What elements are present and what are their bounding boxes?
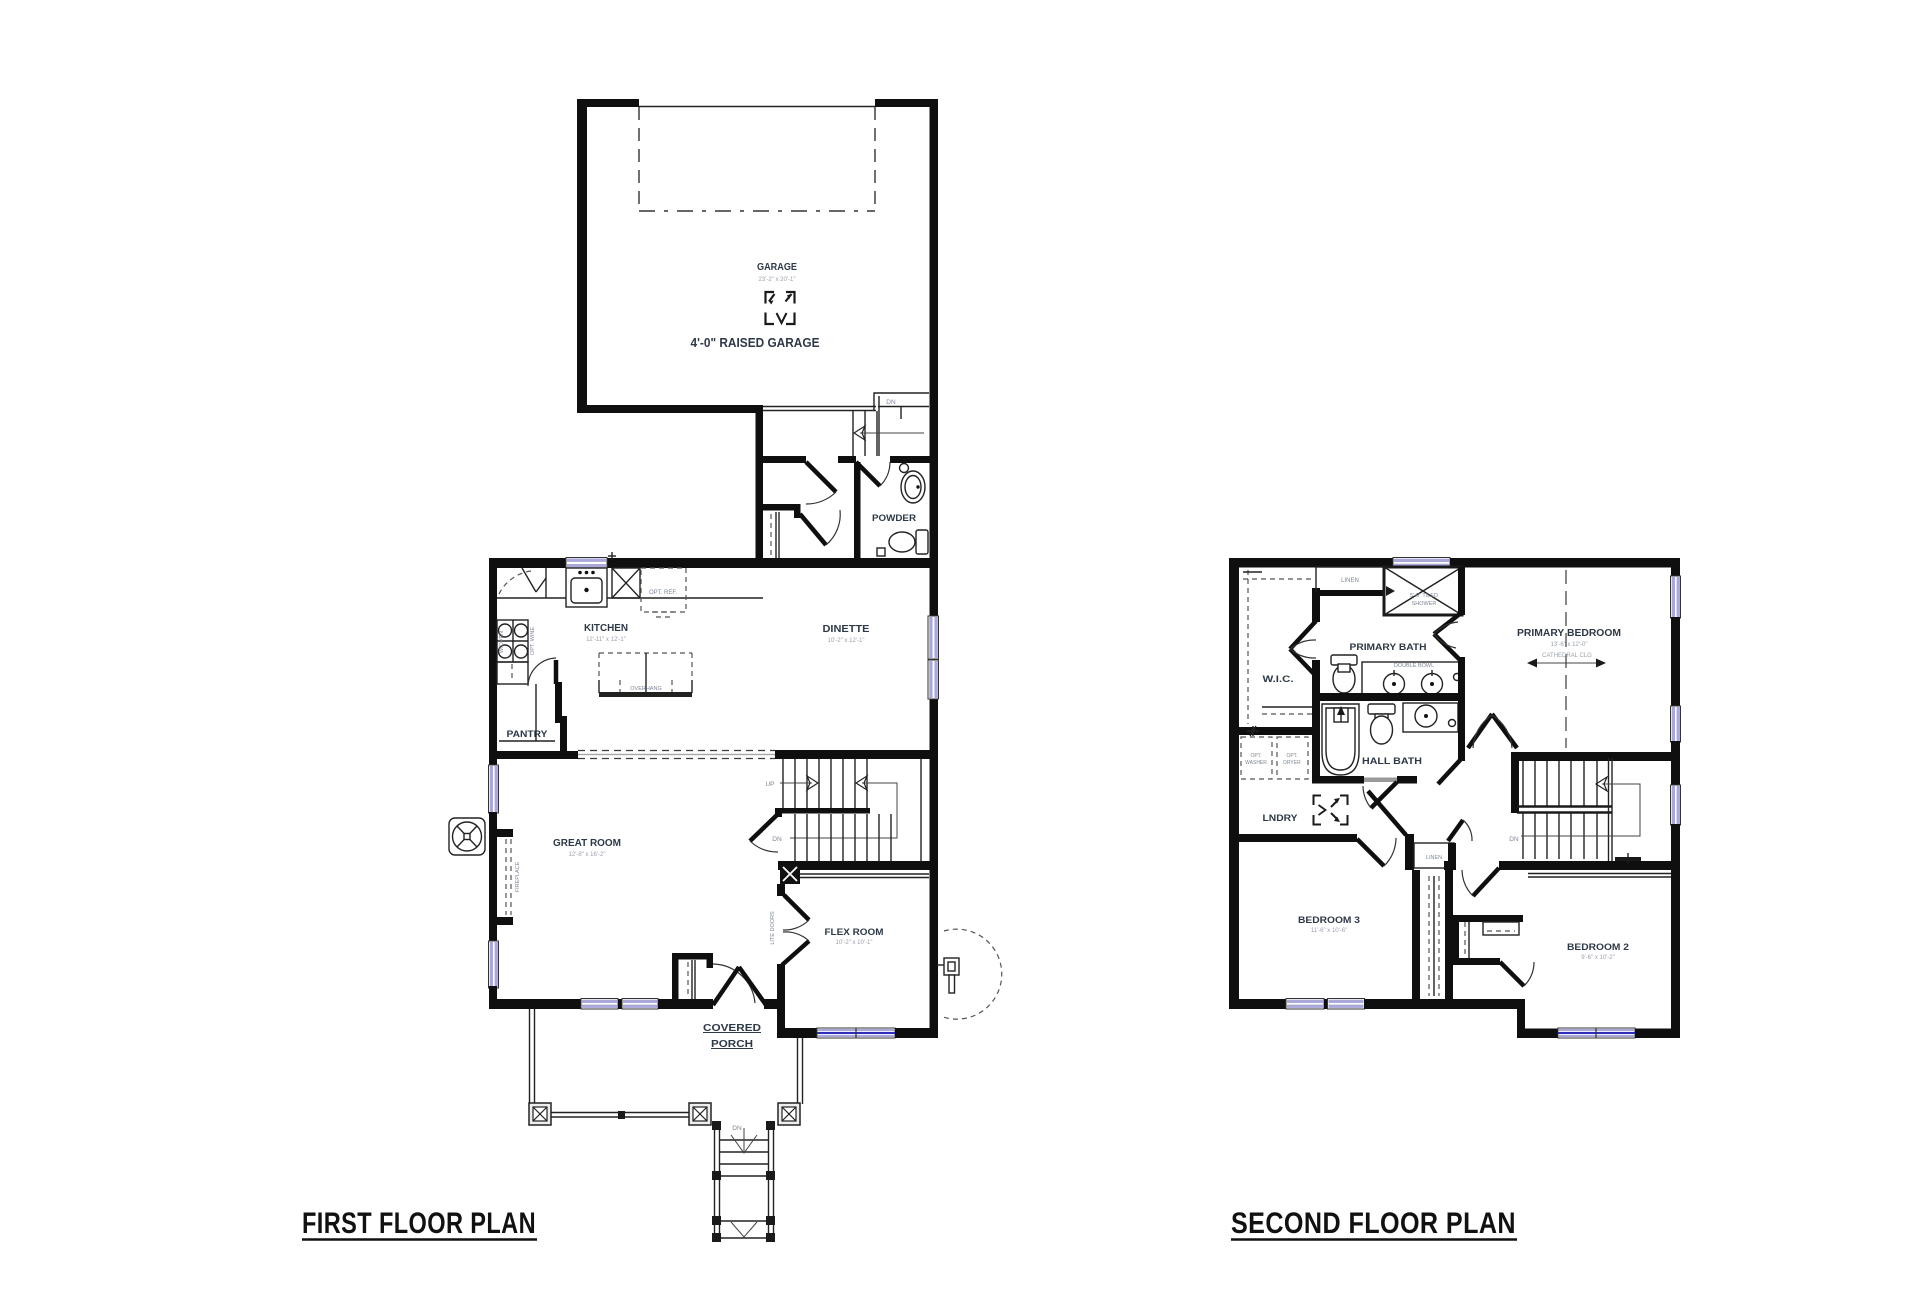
svg-text:LNDRY: LNDRY <box>1263 813 1299 824</box>
svg-text:FLEX ROOM: FLEX ROOM <box>825 927 884 938</box>
svg-text:DINETTE: DINETTE <box>823 624 870 635</box>
svg-text:DN: DN <box>886 399 896 406</box>
svg-text:5'-0" TILED: 5'-0" TILED <box>1410 593 1438 599</box>
svg-text:GARAGE: GARAGE <box>757 262 797 273</box>
svg-text:PRIMARY BATH: PRIMARY BATH <box>1350 642 1427 653</box>
svg-text:OPT.: OPT. <box>1286 753 1297 759</box>
svg-text:LINEN: LINEN <box>1426 855 1442 861</box>
svg-text:11'-6" x 10'-6": 11'-6" x 10'-6" <box>1311 928 1347 934</box>
svg-text:W.I.C.: W.I.C. <box>1263 674 1294 685</box>
svg-text:OVERHANG: OVERHANG <box>630 686 661 692</box>
svg-text:23'-2" x 20'-1": 23'-2" x 20'-1" <box>759 277 796 283</box>
svg-text:LINEN: LINEN <box>1341 578 1359 584</box>
svg-text:12'-11" x 12'-1": 12'-11" x 12'-1" <box>586 637 626 643</box>
svg-text:13'-6" x 12'-0": 13'-6" x 12'-0" <box>1551 642 1588 648</box>
svg-text:SHOWER: SHOWER <box>1412 601 1437 607</box>
svg-text:DOUBLE BOWL: DOUBLE BOWL <box>1394 663 1434 669</box>
svg-text:W/OVEN: W/OVEN <box>499 631 505 653</box>
svg-text:FIREPLACE: FIREPLACE <box>515 861 521 892</box>
svg-text:OPT. WINE: OPT. WINE <box>530 627 536 655</box>
svg-text:HALL BATH: HALL BATH <box>1362 756 1422 767</box>
svg-text:POWDER: POWDER <box>872 513 916 524</box>
svg-text:PORCH: PORCH <box>711 1039 753 1050</box>
svg-text:FIRST FLOOR PLAN: FIRST FLOOR PLAN <box>302 1207 536 1240</box>
svg-text:DN: DN <box>772 836 782 843</box>
svg-text:BEDROOM 2: BEDROOM 2 <box>1567 942 1629 953</box>
svg-text:LITE DOORS: LITE DOORS <box>770 911 776 945</box>
svg-text:12'-8" x 16'-2": 12'-8" x 16'-2" <box>569 852 606 858</box>
svg-text:BEDROOM 3: BEDROOM 3 <box>1298 915 1360 926</box>
svg-text:DRYER: DRYER <box>1283 760 1301 766</box>
svg-text:4'-0" RAISED GARAGE: 4'-0" RAISED GARAGE <box>691 336 820 350</box>
svg-text:WASHER: WASHER <box>1245 760 1267 766</box>
svg-text:OPT.: OPT. <box>1250 753 1261 759</box>
svg-text:PANTRY: PANTRY <box>507 729 549 740</box>
svg-text:DN: DN <box>1509 836 1519 843</box>
svg-text:SECOND FLOOR PLAN: SECOND FLOOR PLAN <box>1231 1207 1516 1240</box>
svg-text:CATHEDRAL CLG: CATHEDRAL CLG <box>1542 653 1592 659</box>
svg-text:9'-6" x 10'-2": 9'-6" x 10'-2" <box>1581 955 1615 961</box>
svg-text:GREAT ROOM: GREAT ROOM <box>553 838 621 849</box>
svg-text:10'-2" x 10'-1": 10'-2" x 10'-1" <box>836 940 873 946</box>
svg-text:10'-2" x 12'-1": 10'-2" x 12'-1" <box>828 638 865 644</box>
svg-text:UP: UP <box>765 781 774 788</box>
svg-text:OPT. REF.: OPT. REF. <box>649 590 677 596</box>
svg-text:KITCHEN: KITCHEN <box>584 623 628 634</box>
svg-text:PRIMARY BEDROOM: PRIMARY BEDROOM <box>1517 628 1621 639</box>
svg-text:DN: DN <box>732 1125 742 1132</box>
svg-text:COVERED: COVERED <box>703 1023 761 1034</box>
